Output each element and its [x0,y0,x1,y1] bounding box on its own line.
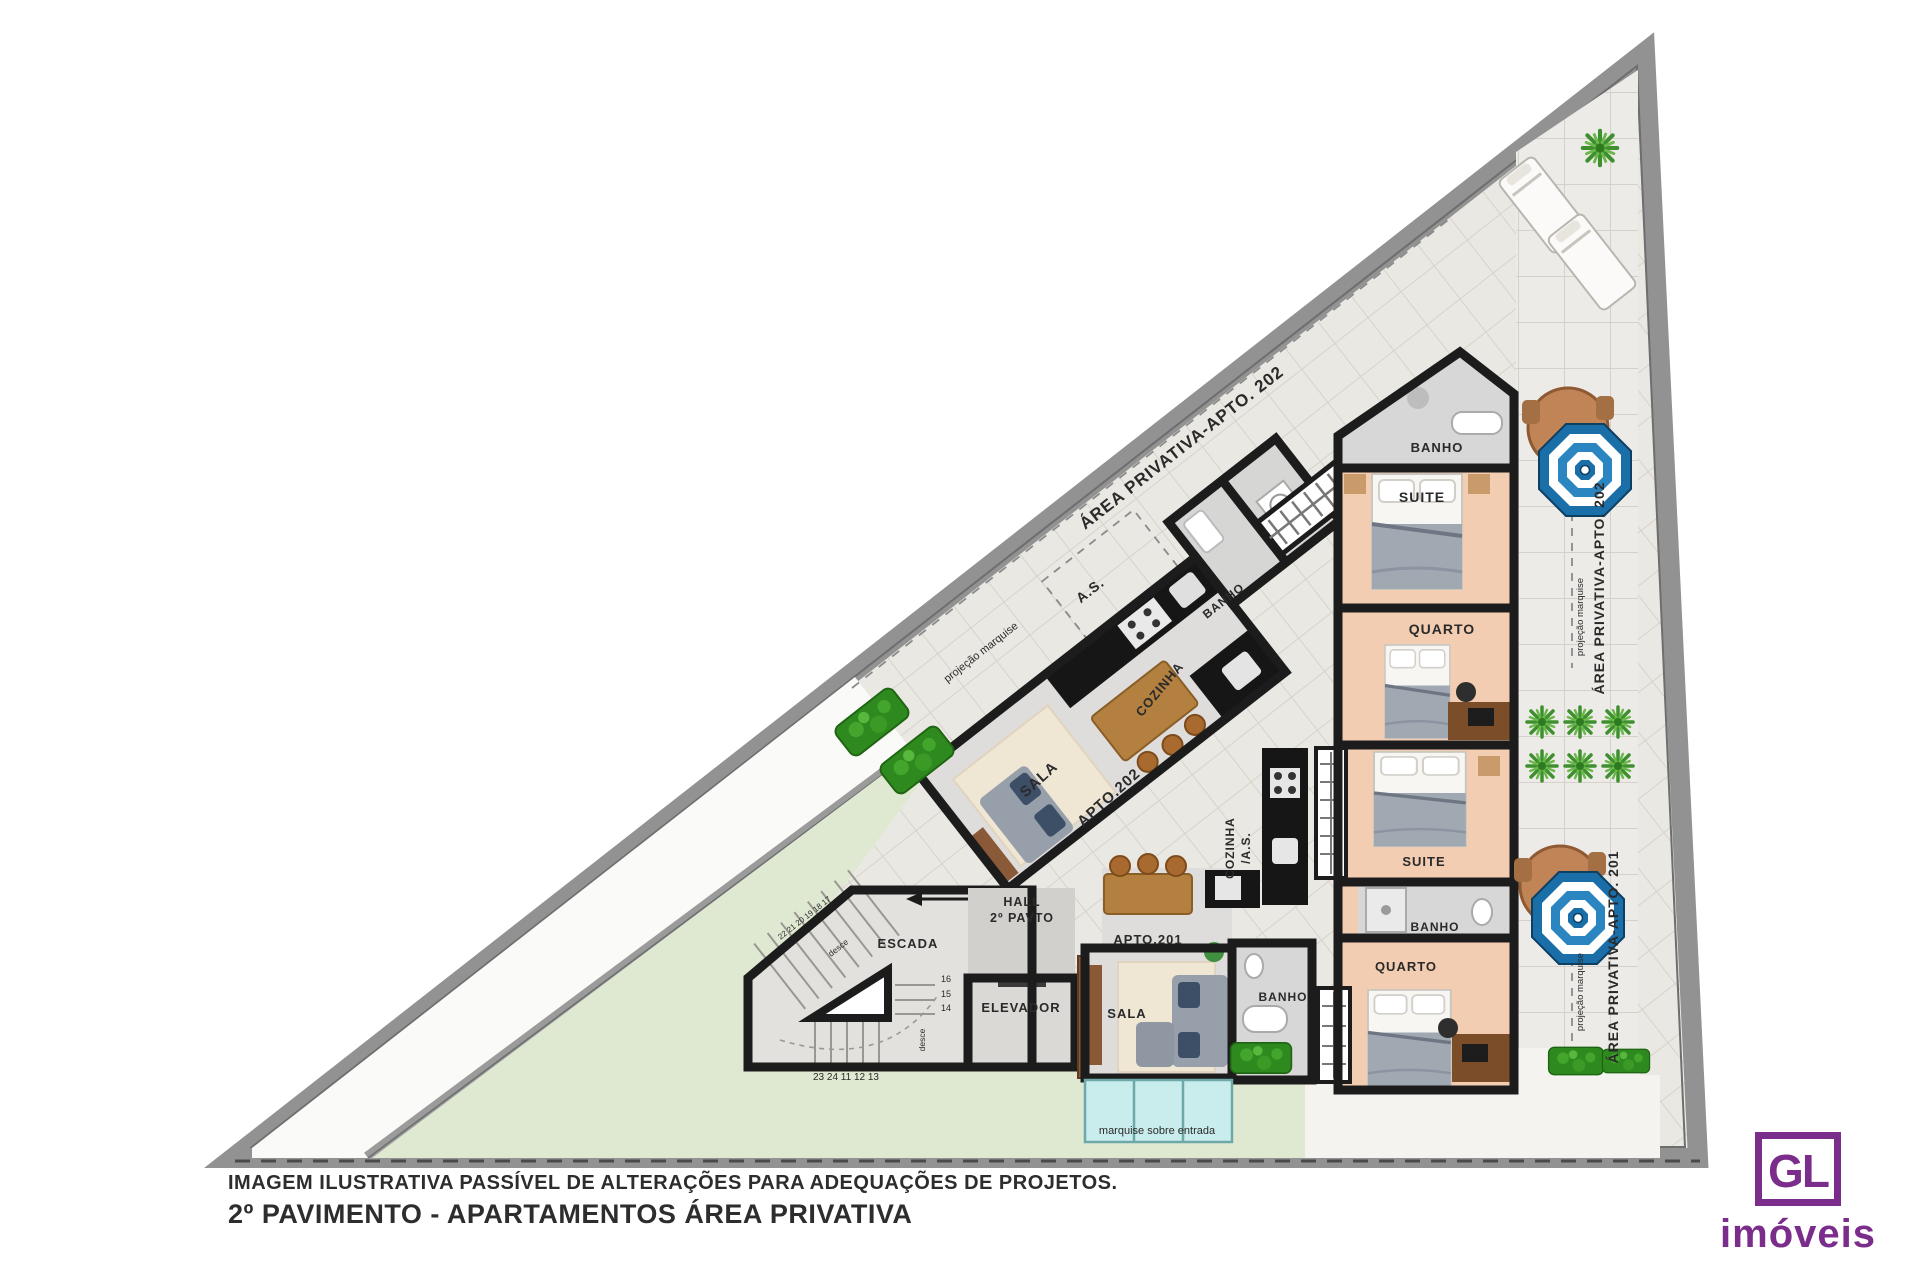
label-banho-201-mid: BANHO [1259,990,1308,1004]
label-area-privativa-202-vertical: ÁREA PRIVATIVA-APTO. 202 [1591,481,1607,694]
stair-number-14: 14 [941,1003,951,1013]
tv-panel [1088,965,1102,1065]
floor-plan-canvas: ÁREA PRIVATIVA-APTO. 202 projeção marqui… [0,0,1920,1280]
bed [1368,990,1451,1088]
laptop-icon [1462,1044,1488,1062]
label-suite-201: SUITE [1402,854,1445,869]
label-hall-line1: HALL [1003,895,1040,909]
desk-chair [1456,682,1476,702]
logo-monogram-box: GL [1755,1132,1841,1206]
logo-name: imóveis [1700,1212,1896,1257]
nightstand [1344,474,1366,494]
label-banho-202-top: BANHO [1411,440,1464,455]
nightstand [1478,756,1500,776]
floor-plan-drawing: ÁREA PRIVATIVA-APTO. 202 projeção marqui… [0,0,1920,1280]
hedge [1549,1047,1604,1074]
umbrella-icon [1539,424,1631,516]
bed [1385,645,1450,738]
caption-block: IMAGEM ILUSTRATIVA PASSÍVEL DE ALTERAÇÕE… [228,1172,1118,1230]
label-desce-lower: desce [917,1028,927,1051]
label-projecao-marquise-202: projeção marquise [1575,578,1586,656]
stair-number-15: 15 [941,989,951,999]
label-cozinha-201-line2: /A.S. [1239,832,1253,864]
label-hall-line2: 2º PAVTO [990,911,1054,925]
logo-monogram: GL [1768,1148,1828,1194]
stair-numbers-bottom: 23 24 11 12 13 [813,1072,879,1083]
laptop-icon [1468,708,1494,726]
label-quarto-201: QUARTO [1375,959,1437,974]
bathtub-icon [1452,412,1502,434]
gl-imoveis-logo: GL imóveis [1700,1132,1896,1257]
toilet-icon [1245,954,1263,978]
label-elevador: ELEVADOR [981,1000,1060,1015]
stove-icon [1270,768,1300,798]
palm-plant-icon [1581,129,1620,168]
stair-number-16: 16 [941,974,951,984]
label-cozinha-201-line1: COZINHA [1223,817,1237,879]
hedge [1231,1043,1292,1073]
label-escada: ESCADA [878,936,939,951]
dining-table [1104,874,1192,914]
label-area-privativa-201-vertical: ÁREA PRIVATIVA-APTO. 201 [1605,850,1621,1063]
label-marquise-entrada: marquise sobre entrada [1099,1125,1216,1137]
toilet-icon [1472,899,1492,925]
caption-disclaimer: IMAGEM ILUSTRATIVA PASSÍVEL DE ALTERAÇÕE… [228,1172,1118,1195]
sofa-chaise [1136,1022,1174,1067]
caption-title: 2º PAVIMENTO - APARTAMENTOS ÁREA PRIVATI… [228,1199,1118,1230]
desk-chair [1438,1018,1458,1038]
bedroom-stack [1316,352,1514,1090]
label-banho-201-suite: BANHO [1411,920,1460,934]
label-projecao-marquise-201: projeção marquise [1575,953,1586,1031]
label-sala-201: SALA [1107,1006,1146,1021]
bathtub-icon [1243,1006,1287,1032]
bed [1374,752,1466,846]
label-suite-202: SUITE [1399,489,1445,505]
label-apto-201: APTO.201 [1113,932,1182,947]
nightstand [1468,474,1490,494]
elevador-floor [968,978,1075,1067]
label-quarto-202: QUARTO [1409,621,1475,637]
